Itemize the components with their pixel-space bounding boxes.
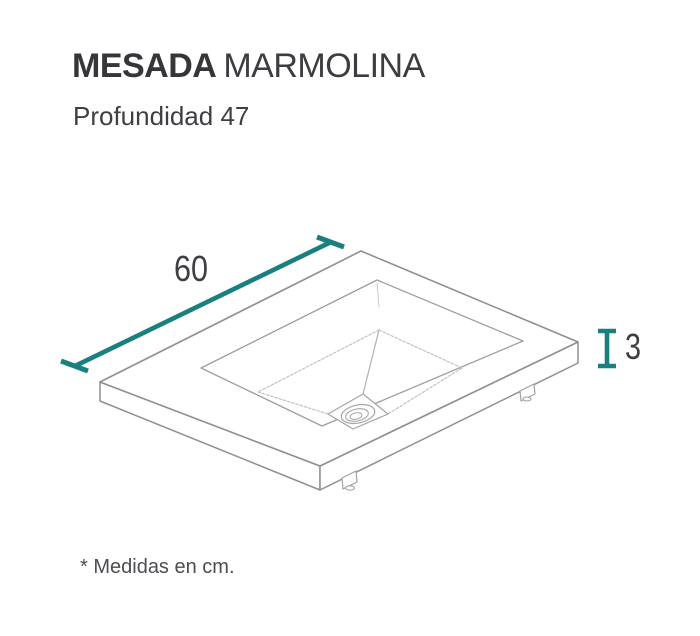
technical-drawing: 60 3: [0, 0, 700, 636]
right-foot-knob: [523, 397, 531, 401]
front-foot-knob: [346, 486, 355, 490]
dimension-thickness-label: 3: [625, 326, 641, 367]
dimension-thickness-marker: [598, 331, 616, 366]
page-container: MESADAMARMOLINA Profundidad 47: [0, 0, 700, 636]
countertop-top-face: [100, 251, 578, 466]
measurement-note: * Medidas en cm.: [80, 556, 235, 579]
dimension-width-label: 60: [174, 248, 208, 289]
